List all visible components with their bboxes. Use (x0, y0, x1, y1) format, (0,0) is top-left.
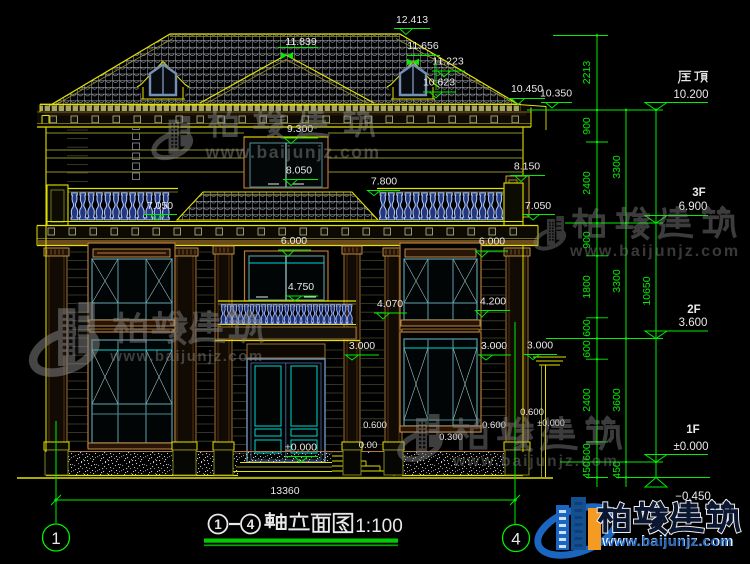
svg-text:3300: 3300 (611, 155, 623, 179)
svg-text:600: 600 (581, 319, 593, 337)
svg-text:www.baijunjz.com: www.baijunjz.com (109, 348, 263, 365)
svg-text:3300: 3300 (611, 269, 623, 293)
svg-text:4: 4 (511, 530, 520, 549)
svg-text:3600: 3600 (611, 388, 623, 412)
svg-text:6.000: 6.000 (281, 235, 307, 247)
svg-text:1: 1 (214, 517, 222, 532)
svg-text:11.839: 11.839 (285, 36, 316, 48)
svg-text:0.600: 0.600 (363, 420, 387, 431)
svg-text:3.000: 3.000 (527, 340, 553, 352)
svg-text:−0.450: −0.450 (675, 491, 711, 503)
svg-text:www.baijunjz.com: www.baijunjz.com (603, 533, 733, 549)
svg-text:7.800: 7.800 (371, 176, 397, 188)
svg-text:www.baijunjz.com: www.baijunjz.com (569, 243, 740, 260)
svg-text:www.baijunjz.com: www.baijunjz.com (452, 453, 619, 470)
svg-text:±0.000: ±0.000 (285, 442, 317, 454)
svg-text:4.750: 4.750 (288, 281, 314, 293)
svg-text:12.413: 12.413 (396, 14, 428, 26)
svg-text:900: 900 (581, 117, 593, 135)
svg-text:10.200: 10.200 (673, 89, 708, 101)
svg-text:10.350: 10.350 (540, 88, 572, 100)
svg-text:7.050: 7.050 (147, 200, 173, 212)
svg-text:600: 600 (581, 340, 593, 358)
svg-text:3.000: 3.000 (481, 340, 507, 352)
svg-text:3F: 3F (692, 187, 705, 199)
svg-text:6.000: 6.000 (479, 236, 505, 248)
svg-text:2400: 2400 (581, 388, 593, 412)
svg-text:www.baijunjz.com: www.baijunjz.com (204, 142, 380, 162)
svg-text:0.00: 0.00 (359, 440, 378, 451)
svg-text:4: 4 (247, 517, 255, 532)
svg-text:4.200: 4.200 (480, 296, 506, 308)
svg-text:8.050: 8.050 (286, 165, 312, 177)
svg-text:0.600: 0.600 (520, 407, 544, 418)
svg-text:7.050: 7.050 (525, 200, 551, 212)
svg-text:1: 1 (51, 529, 60, 548)
svg-text:2400: 2400 (581, 171, 593, 195)
svg-text:10.623: 10.623 (423, 77, 455, 89)
svg-text:2213: 2213 (581, 61, 593, 85)
svg-text:1:100: 1:100 (355, 516, 403, 537)
svg-text:13360: 13360 (270, 485, 299, 497)
svg-text:1F: 1F (686, 424, 699, 436)
svg-text:4.070: 4.070 (377, 298, 403, 310)
svg-text:11.656: 11.656 (407, 40, 438, 52)
svg-text:3.600: 3.600 (679, 317, 708, 329)
svg-text:11.223: 11.223 (432, 56, 463, 68)
svg-text:10.450: 10.450 (511, 83, 543, 95)
svg-text:10650: 10650 (641, 276, 653, 305)
svg-text:1800: 1800 (581, 275, 593, 299)
svg-text:±0.000: ±0.000 (673, 441, 708, 453)
svg-text:2F: 2F (687, 304, 700, 316)
svg-text:3.000: 3.000 (349, 340, 375, 352)
svg-text:8.150: 8.150 (514, 161, 540, 173)
